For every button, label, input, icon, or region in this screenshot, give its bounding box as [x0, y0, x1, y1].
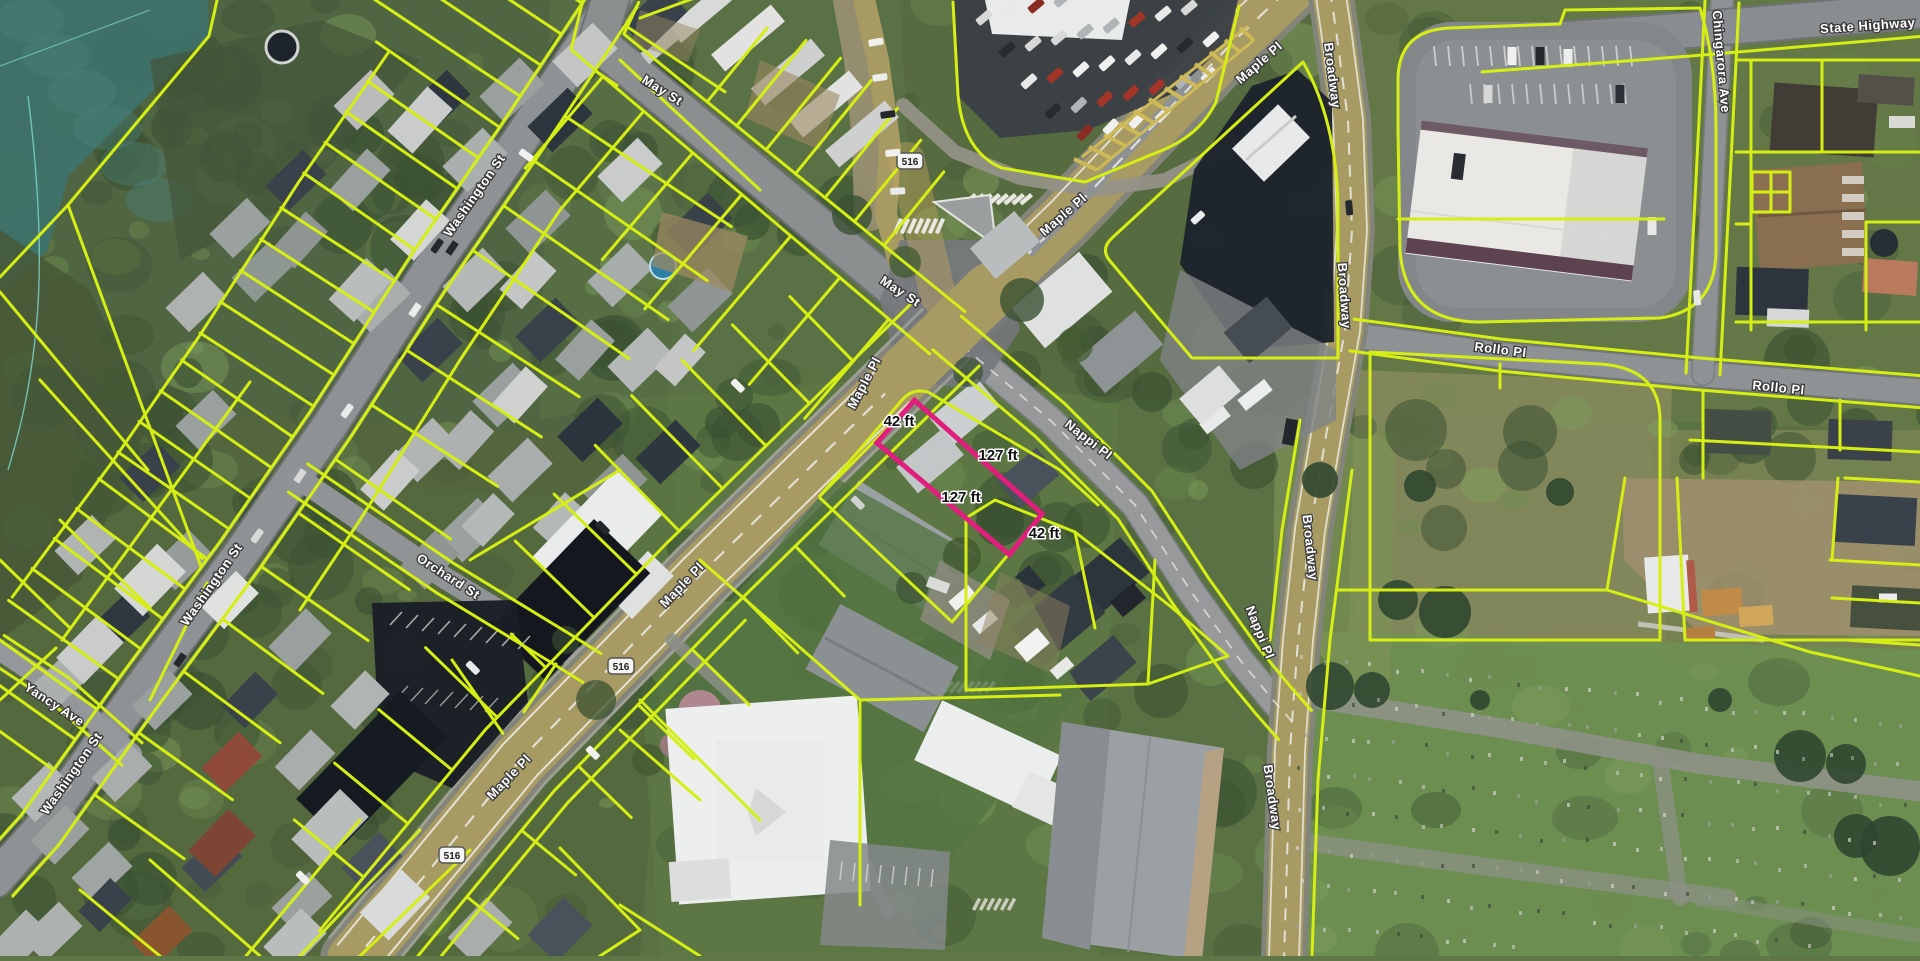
svg-text:127 ft: 127 ft: [941, 489, 980, 506]
svg-text:127 ft: 127 ft: [978, 447, 1017, 464]
svg-text:42 ft: 42 ft: [884, 413, 915, 430]
svg-text:42 ft: 42 ft: [1029, 525, 1060, 542]
svg-text:516: 516: [444, 851, 461, 862]
svg-text:516: 516: [902, 157, 919, 168]
svg-text:516: 516: [613, 662, 630, 673]
